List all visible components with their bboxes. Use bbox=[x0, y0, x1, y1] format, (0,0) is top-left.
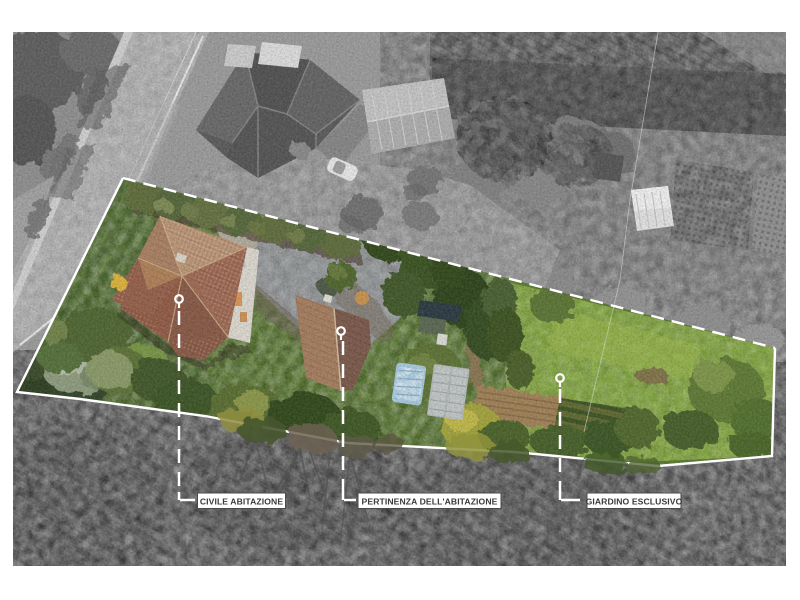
svg-text:PERTINENZA DELL'ABITAZIONE: PERTINENZA DELL'ABITAZIONE bbox=[362, 497, 498, 507]
svg-text:GIARDINO ESCLUSIVO: GIARDINO ESCLUSIVO bbox=[586, 497, 683, 507]
svg-text:CIVILE ABITAZIONE: CIVILE ABITAZIONE bbox=[200, 497, 284, 507]
